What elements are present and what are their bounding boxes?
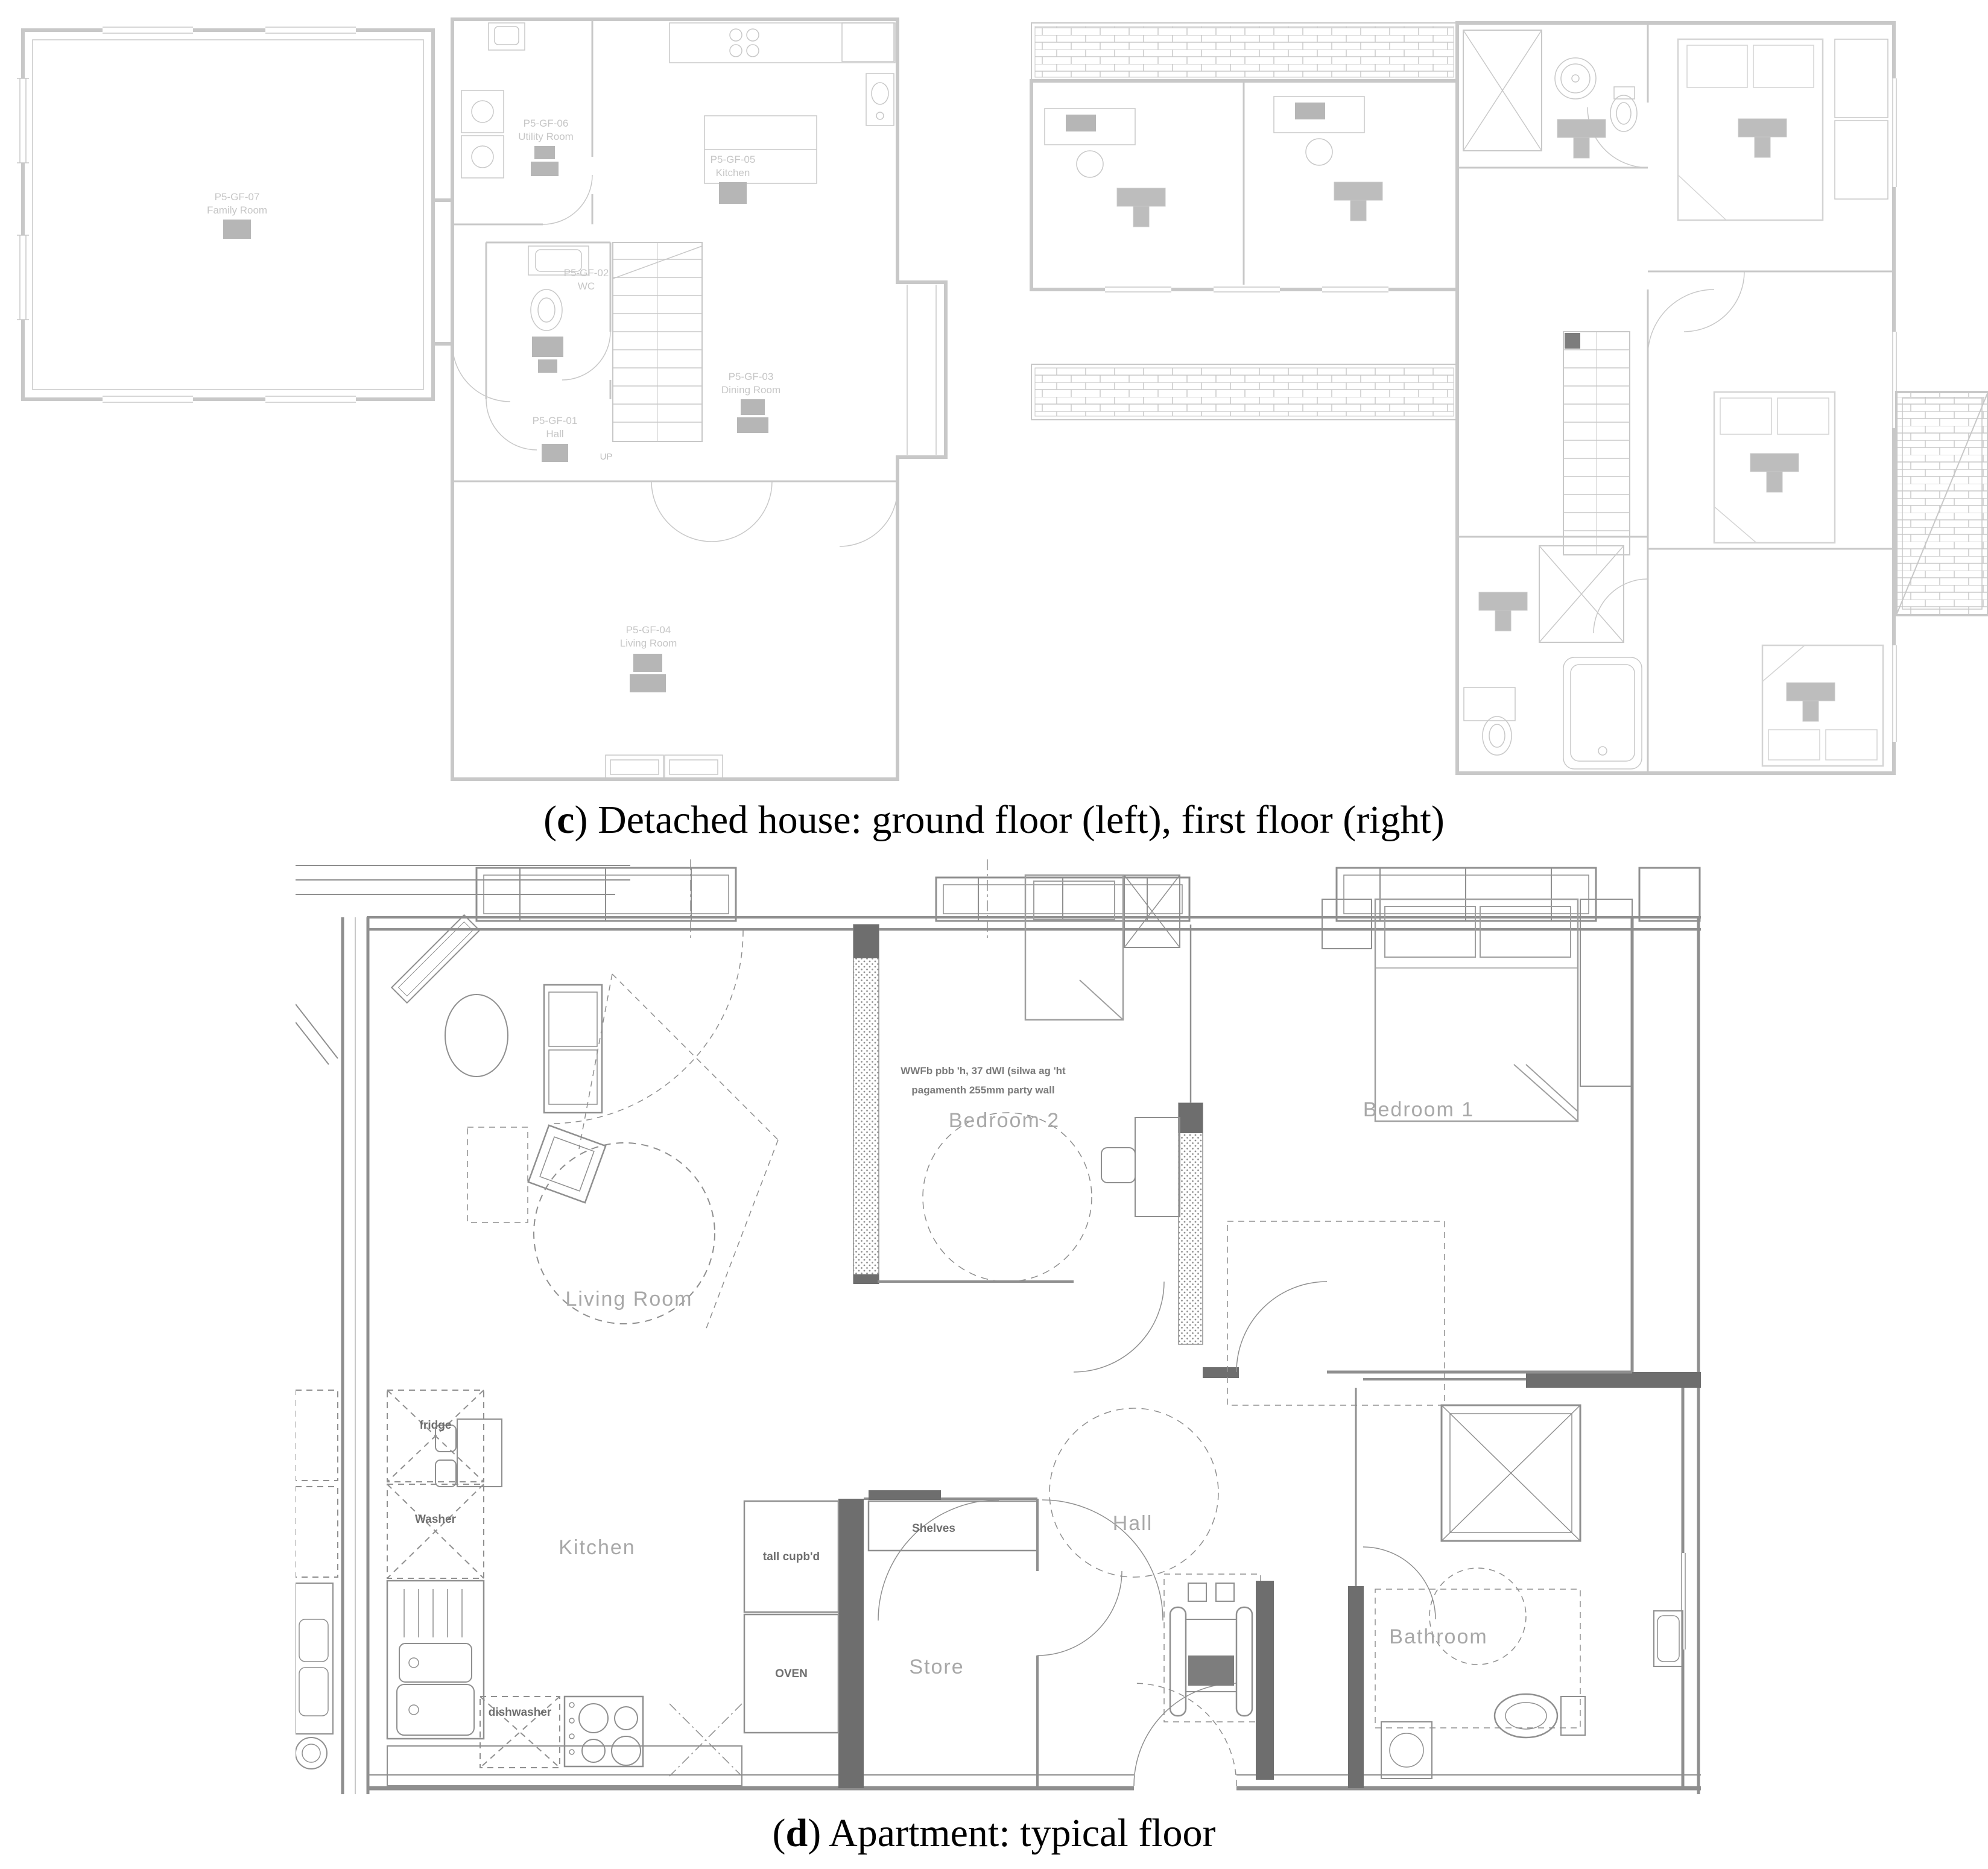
room-label-kitchen: Kitchen — [559, 1536, 635, 1559]
room-name: Hall — [546, 428, 563, 440]
room-tag-icon — [542, 444, 568, 462]
armchair-icon — [528, 1125, 606, 1203]
staircase-icon — [1563, 332, 1630, 555]
basin-icon — [1555, 58, 1596, 99]
desk-icon — [1135, 1118, 1180, 1216]
kitchen-counter-icon — [670, 23, 895, 183]
ceiling-light-icon — [1787, 683, 1835, 721]
party-wall-note-line1: WWFb pbb 'h, 37 dWl (silwa ag 'ht — [901, 1065, 1066, 1077]
bed-icon — [1375, 899, 1578, 1121]
wheelchair-icon — [1164, 1574, 1261, 1722]
room-name: Kitchen — [716, 167, 750, 179]
door-swing-icon — [543, 175, 592, 224]
room-id: P5-GF-02 — [564, 267, 609, 279]
activity-zone-icon — [467, 1127, 528, 1222]
corner-unit-icon — [670, 1704, 742, 1776]
door-swing-icon — [1037, 1571, 1122, 1656]
ceiling-light-icon — [1750, 454, 1799, 492]
room-label-bathroom: Bathroom — [1389, 1625, 1487, 1648]
door-swing-icon — [1074, 1282, 1164, 1372]
bedside-table-icon — [1322, 899, 1372, 949]
turning-circle-icon — [1429, 1568, 1526, 1665]
window-icon — [1105, 285, 1388, 294]
utility-appliances-icon — [461, 23, 525, 178]
kitchen-sink-icon — [387, 1581, 484, 1739]
room-tag-icon — [534, 146, 555, 159]
shower-icon — [1442, 1405, 1580, 1541]
double-door-icon — [606, 755, 723, 779]
bay-window-icon — [907, 285, 936, 455]
toilet-icon — [1483, 716, 1512, 755]
caption-d: (d) Apartment: typical floor — [0, 1810, 1988, 1856]
appliance-space-icon — [387, 1390, 484, 1578]
fitting-label-fridge: fridge — [420, 1419, 452, 1432]
room-name: Family Room — [207, 204, 267, 216]
toilet-icon — [1610, 87, 1637, 131]
toilet-icon — [1495, 1694, 1585, 1738]
bed-icon — [1762, 645, 1883, 766]
fitting-label-shelves: Shelves — [912, 1522, 955, 1535]
caption-c-letter: c — [557, 798, 574, 842]
activity-zone-icon — [1227, 1221, 1445, 1405]
door-swing-icon — [562, 332, 610, 380]
boiler-icon — [1381, 1722, 1432, 1779]
room-label-living-room: Living Room — [566, 1288, 693, 1311]
caption-c: (c) Detached house: ground floor (left),… — [0, 797, 1988, 843]
sofa-icon — [544, 985, 602, 1113]
ceiling-light-icon — [1334, 182, 1382, 221]
ceiling-light-icon — [1117, 188, 1165, 227]
room-id: P5-GF-04 — [626, 624, 671, 636]
room-label-kitchen: P5-GF-05 Kitchen — [711, 154, 756, 204]
bed-icon — [1025, 875, 1123, 1020]
room-id: P5-GF-05 — [711, 154, 756, 165]
room-id: P5-GF-06 — [524, 118, 569, 129]
room-label-family-room: P5-GF-07 Family Room — [207, 191, 267, 239]
room-tag-icon — [719, 182, 747, 204]
window-icon — [17, 24, 356, 405]
room-label-living-room: P5-GF-04 Living Room — [620, 624, 677, 692]
room-name: WC — [578, 280, 595, 292]
door-swing-icon — [1648, 289, 1714, 356]
first-floor-plan — [1021, 6, 1988, 781]
room-label-bedroom2: Bedroom 2 — [949, 1109, 1060, 1132]
ground-floor-walls — [17, 19, 946, 779]
apartment-room-labels: Living Room Kitchen Bedroom 2 Bedroom 1 … — [415, 1065, 1488, 1719]
caption-d-text: Apartment: typical floor — [829, 1811, 1215, 1855]
room-tag-icon — [737, 417, 768, 433]
first-floor-walls — [1031, 23, 1988, 773]
ceiling-light-icon — [1479, 592, 1527, 631]
room-tag-icon — [741, 399, 765, 415]
wardrobe-icon — [1124, 875, 1180, 947]
basin-icon — [1464, 688, 1515, 721]
brick-band-icon — [1031, 23, 1457, 81]
room-label-store: Store — [909, 1656, 964, 1678]
wardrobe-icon — [1580, 899, 1632, 1086]
room-label-hall: P5-GF-01 Hall — [533, 415, 578, 462]
room-id: P5-GF-07 — [215, 191, 260, 203]
path-line-icon — [579, 974, 778, 1330]
shower-icon — [1463, 30, 1542, 151]
balcony-door-swing-icon — [550, 931, 743, 1124]
turning-circle-icon — [923, 1113, 1092, 1282]
room-label-bedroom1: Bedroom 1 — [1363, 1098, 1474, 1121]
neighbour-flat-fragment — [296, 1004, 338, 1769]
door-swing-icon — [1594, 579, 1648, 633]
door-swing-icon — [1363, 1547, 1436, 1619]
turning-circle-icon — [1049, 1408, 1218, 1577]
caption-c-paren-close: ) — [574, 798, 597, 842]
room-tag-icon — [633, 654, 662, 672]
room-name: Dining Room — [721, 384, 780, 396]
room-tag-icon — [538, 359, 557, 373]
chair-icon — [1101, 1148, 1135, 1183]
caption-d-paren-open: ( — [772, 1811, 785, 1855]
staircase-icon — [613, 242, 702, 441]
bathtub-icon — [1563, 657, 1642, 769]
fitting-label-dishwasher: dishwasher — [489, 1706, 552, 1719]
ground-floor-plan: P5-GF-07 Family Room P5-GF-06 Utility Ro… — [12, 6, 953, 781]
table-icon — [445, 995, 508, 1077]
fitting-label-oven: OVEN — [775, 1668, 808, 1680]
fitting-label-tall-cupboard: tall cupb'd — [763, 1551, 820, 1563]
room-name: Utility Room — [518, 131, 574, 142]
fitting-label-washer: Washer — [415, 1513, 457, 1526]
room-tag-icon — [531, 162, 559, 176]
room-tag-icon — [223, 220, 251, 239]
room-label-utility-room: P5-GF-06 Utility Room — [518, 118, 574, 176]
room-name: Living Room — [620, 637, 677, 649]
shower-icon — [1539, 546, 1624, 642]
wardrobe-icon — [1835, 39, 1888, 199]
party-wall-note-line2: pagamenth 255mm party wall — [911, 1084, 1054, 1096]
room-id: P5-GF-03 — [729, 371, 774, 382]
caption-d-paren-close: ) — [808, 1811, 829, 1855]
caption-c-text: Detached house: ground floor (left), fir… — [598, 798, 1445, 842]
desk-icon — [1045, 96, 1364, 177]
ceiling-light-icon — [1557, 119, 1606, 158]
porch-roof-icon — [1896, 392, 1988, 615]
room-id: P5-GF-01 — [533, 415, 578, 426]
room-label-hall: Hall — [1113, 1512, 1153, 1535]
caption-d-letter: d — [785, 1811, 808, 1855]
activity-zone-icon — [1375, 1589, 1580, 1728]
room-label-wc: P5-GF-02 WC — [532, 267, 609, 373]
apartment-plan: Living Room Kitchen Bedroom 2 Bedroom 1 … — [296, 859, 1701, 1794]
door-swing-icon — [1684, 271, 1744, 332]
door-swing-icon — [452, 344, 897, 546]
caption-c-paren-open: ( — [543, 798, 557, 842]
room-tag-icon — [532, 337, 563, 357]
room-label-dining-room: P5-GF-03 Dining Room — [721, 371, 780, 433]
brick-band-icon — [1031, 364, 1457, 420]
stair-direction-label: UP — [600, 452, 613, 462]
room-tag-icon — [630, 674, 666, 692]
apartment-walls — [296, 859, 1701, 1794]
basin-icon — [1654, 1611, 1683, 1666]
hob-icon — [565, 1697, 643, 1766]
ceiling-light-icon — [1738, 119, 1787, 157]
door-swing-icon — [1236, 1282, 1327, 1372]
